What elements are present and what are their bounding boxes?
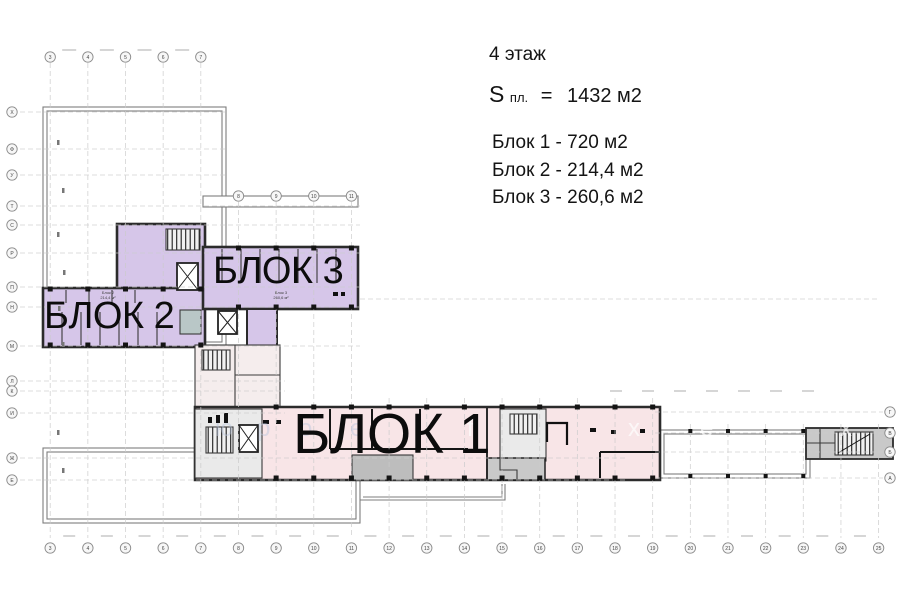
- svg-text:М: М: [10, 344, 14, 350]
- block3-area-line: Блок 3 - 260,6 м2: [492, 184, 644, 212]
- svg-text:19: 19: [650, 546, 656, 552]
- watermark-letter: х: [628, 415, 640, 442]
- svg-text:9: 9: [275, 194, 278, 200]
- svg-text:Г: Г: [889, 410, 892, 416]
- svg-text:3: 3: [49, 546, 52, 552]
- svg-text:16: 16: [537, 546, 543, 552]
- svg-text:С: С: [10, 223, 14, 229]
- svg-text:17: 17: [575, 546, 581, 552]
- svg-text:11: 11: [349, 546, 354, 552]
- total-area-value: 1432 м2: [567, 85, 642, 107]
- floor-plan-page: Блок 2 214,4 м² Блок 3 260,6 м² 34567891…: [0, 0, 900, 604]
- svg-text:24: 24: [838, 546, 844, 552]
- block2-area-line: Блок 2 - 214,4 м2: [492, 157, 644, 185]
- svg-text:14: 14: [462, 546, 468, 552]
- core-mid: [195, 345, 280, 407]
- svg-text:Н: Н: [10, 305, 14, 311]
- svg-text:4: 4: [86, 546, 89, 552]
- svg-text:15: 15: [499, 546, 505, 552]
- block2-label: БЛОК 2: [44, 297, 174, 335]
- svg-text:Ф: Ф: [10, 147, 14, 153]
- block1-label: БЛОК 1: [293, 406, 490, 463]
- area-subscript: пл.: [510, 90, 528, 105]
- svg-text:11: 11: [349, 194, 354, 200]
- svg-text:22: 22: [763, 546, 769, 552]
- svg-text:20: 20: [688, 546, 694, 552]
- svg-text:6: 6: [162, 546, 165, 552]
- block1-area-line: Блок 1 - 720 м2: [492, 129, 644, 157]
- floor-title: 4 этаж: [489, 44, 644, 66]
- watermark-letter: е: [700, 415, 713, 442]
- block-areas-list: Блок 1 - 720 м2 Блок 2 - 214,4 м2 Блок 3…: [489, 129, 644, 212]
- svg-text:7: 7: [199, 546, 202, 552]
- elevator-icon: [218, 311, 237, 334]
- watermark-letter: ю: [215, 415, 233, 442]
- svg-text:21: 21: [725, 546, 731, 552]
- block3-label: БЛОК 3: [213, 252, 343, 290]
- area-symbol: S: [489, 81, 504, 107]
- info-panel: 4 этаж S пл. = 1432 м2 Блок 1 - 720 м2 Б…: [489, 44, 644, 212]
- svg-text:8: 8: [237, 194, 240, 200]
- svg-text:И: И: [10, 411, 14, 417]
- svg-text:8: 8: [237, 546, 240, 552]
- total-area-line: S пл. = 1432 м2: [489, 81, 644, 108]
- watermark-letter: х: [840, 415, 852, 442]
- svg-text:6: 6: [162, 55, 165, 61]
- svg-text:Ж: Ж: [10, 456, 15, 462]
- svg-text:Л: Л: [10, 379, 13, 385]
- svg-text:25: 25: [876, 546, 882, 552]
- svg-text:Т: Т: [10, 204, 13, 210]
- corridor-right: [660, 430, 810, 478]
- elevator-icon: [239, 425, 258, 452]
- svg-text:3: 3: [49, 55, 52, 61]
- svg-text:9: 9: [275, 546, 278, 552]
- svg-text:5: 5: [124, 55, 127, 61]
- room-annotation: 260,6 м²: [273, 295, 289, 300]
- equals-sign: =: [541, 85, 553, 107]
- svg-text:13: 13: [424, 546, 430, 552]
- stairs-icon: [166, 229, 200, 250]
- svg-text:П: П: [10, 285, 14, 291]
- svg-text:К: К: [11, 389, 14, 395]
- svg-text:5: 5: [124, 546, 127, 552]
- svg-text:12: 12: [386, 546, 392, 552]
- svg-text:7: 7: [199, 55, 202, 61]
- svg-text:10: 10: [311, 194, 317, 200]
- svg-text:23: 23: [801, 546, 807, 552]
- svg-text:18: 18: [612, 546, 618, 552]
- svg-text:10: 10: [311, 546, 317, 552]
- svg-text:4: 4: [86, 55, 89, 61]
- watermark-letter: р: [257, 415, 270, 442]
- elevator-icon: [177, 263, 198, 290]
